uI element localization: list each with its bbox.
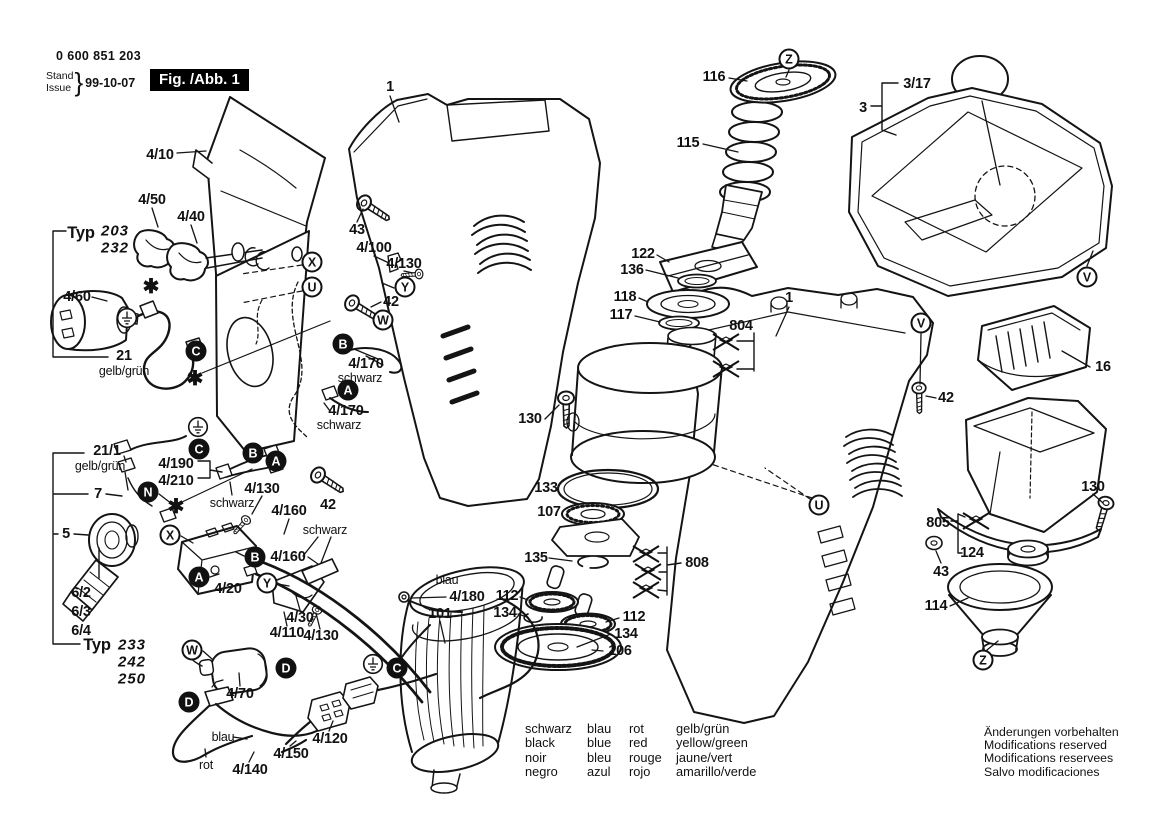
- issue-date: 99-10-07: [85, 76, 135, 90]
- callout-4-140: 4/140: [232, 763, 267, 778]
- legend-term: rouge: [629, 751, 676, 765]
- connector-w-outline: W: [373, 310, 394, 331]
- document-part-number: 0 600 851 203: [56, 49, 141, 63]
- obsolete-symbol: [631, 544, 661, 564]
- note-line: Modifications reservees: [984, 752, 1119, 765]
- connector-z-outline: Z: [779, 49, 800, 70]
- legend-term: black: [525, 736, 587, 750]
- footer-notes: Änderungen vorbehalten Modifications res…: [984, 726, 1119, 779]
- callout-42: 42: [938, 391, 954, 406]
- callout-130: 130: [1081, 480, 1105, 495]
- connector-c-filled: C: [186, 341, 207, 362]
- callout-6-3: 6/3: [71, 605, 91, 620]
- callout-7: 7: [94, 487, 102, 502]
- ground-symbol: [187, 416, 209, 438]
- callout-242: 242: [118, 655, 146, 670]
- callout-42: 42: [383, 295, 399, 310]
- callout-117: 117: [610, 308, 633, 323]
- callout-schwarz: schwarz: [210, 497, 254, 510]
- connector-y-outline: Y: [257, 573, 278, 594]
- legend-term: rot: [629, 722, 676, 736]
- callout-6-2: 6/2: [71, 586, 91, 601]
- issue-block: Stand Issue }99-10-07: [46, 70, 135, 98]
- callout-4-10: 4/10: [146, 148, 173, 163]
- connector-a-filled: A: [189, 567, 210, 588]
- callout-4-70: 4/70: [226, 687, 253, 702]
- stand-label: Stand: [46, 70, 73, 82]
- callout-805: 805: [926, 516, 950, 531]
- obsolete-symbol: [711, 332, 741, 352]
- obsolete-symbol: [711, 359, 741, 379]
- callout-21: 21: [116, 349, 132, 364]
- callout-106: 106: [608, 644, 632, 659]
- legend-term: azul: [587, 765, 629, 779]
- callout-16: 16: [1095, 360, 1111, 375]
- connector-x-outline: X: [160, 525, 181, 546]
- callout-4-210: 4/210: [158, 474, 193, 489]
- insert-16: [978, 306, 1090, 390]
- connector-a-filled: A: [266, 451, 287, 472]
- connector-v-outline: V: [1077, 267, 1098, 288]
- connector-v-outline: V: [911, 313, 932, 334]
- callout-typ: Typ: [67, 225, 95, 242]
- connector-u-outline: U: [809, 495, 830, 516]
- legend-term: blau: [587, 722, 629, 736]
- callout-134: 134: [614, 627, 638, 642]
- connector-b-filled: B: [245, 547, 266, 568]
- callout-4-130: 4/130: [303, 629, 338, 644]
- callout-124: 124: [960, 546, 984, 561]
- callout-107: 107: [537, 505, 561, 520]
- callout-5: 5: [62, 527, 70, 542]
- legend-term: negro: [525, 765, 587, 779]
- callout-122: 122: [631, 247, 655, 262]
- callout-schwarz: schwarz: [303, 524, 347, 537]
- color-legend: schwarzblaurotgelb/grünblackblueredyello…: [525, 722, 756, 779]
- callout-3: 3: [859, 101, 867, 116]
- hopper-cover: [849, 56, 1112, 296]
- legend-term: red: [629, 736, 676, 750]
- figure-label: Fig. /Abb. 1: [150, 69, 249, 91]
- callout-136: 136: [620, 263, 644, 278]
- callout-4-120: 4/120: [312, 732, 347, 747]
- callout-4-110: 4/110: [270, 626, 305, 641]
- callout-4-160: 4/160: [271, 504, 306, 519]
- callout-gelb-gr-n: gelb/grün: [75, 460, 125, 473]
- callout-133: 133: [534, 481, 558, 496]
- callout-203: 203: [101, 224, 129, 239]
- callout-112: 112: [623, 610, 646, 625]
- legend-term: rojo: [629, 765, 676, 779]
- legend-term: noir: [525, 751, 587, 765]
- asterisk-symbol: ✱: [143, 277, 160, 297]
- callout-blau: blau: [212, 731, 235, 744]
- callout-4-60: 4/60: [63, 290, 90, 305]
- callout-4-50: 4/50: [138, 193, 165, 208]
- callout-808: 808: [685, 556, 709, 571]
- callout-4-150: 4/150: [273, 747, 308, 762]
- callout-4-170: 4/170: [328, 404, 363, 419]
- connector-w-outline: W: [182, 640, 203, 661]
- legend-term: jaune/vert: [676, 751, 756, 765]
- callout-42: 42: [320, 498, 336, 513]
- callout-4-40: 4/40: [177, 210, 204, 225]
- callout-4-130: 4/130: [386, 257, 421, 272]
- legend-term: bleu: [587, 751, 629, 765]
- callout-4-20: 4/20: [214, 582, 241, 597]
- obsolete-symbol: [633, 562, 663, 582]
- callout-130: 130: [518, 412, 542, 427]
- diagram-canvas: 0 600 851 203 Stand Issue }99-10-07 Fig.…: [0, 0, 1168, 826]
- legend-term: yellow/green: [676, 736, 756, 750]
- legend-term: gelb/grün: [676, 722, 756, 736]
- callout-115: 115: [677, 136, 700, 151]
- callout-gelb-gr-n: gelb/grün: [99, 365, 149, 378]
- callout-116: 116: [703, 70, 726, 85]
- callout-232: 232: [101, 241, 129, 256]
- connector-a-filled: A: [338, 380, 359, 401]
- callout-233: 233: [118, 638, 146, 653]
- brace-glyph: }: [74, 70, 83, 94]
- connector-z-outline: Z: [973, 650, 994, 671]
- connector-c-filled: C: [189, 439, 210, 460]
- legend-term: amarillo/verde: [676, 765, 756, 779]
- callout-4-160: 4/160: [270, 550, 305, 565]
- connector-u-outline: U: [302, 277, 323, 298]
- connector-d-filled: D: [179, 692, 200, 713]
- callout-1: 1: [386, 80, 394, 95]
- connector-n-filled: N: [138, 482, 159, 503]
- callout-134: 134: [493, 606, 517, 621]
- ground-symbol: [362, 653, 384, 675]
- callout-1: 1: [785, 291, 793, 306]
- callout-4-100: 4/100: [356, 241, 391, 256]
- callout-blau: blau: [436, 574, 459, 587]
- asterisk-symbol: ✱: [168, 497, 185, 517]
- callout-118: 118: [614, 290, 637, 305]
- connector-b-filled: B: [243, 443, 264, 464]
- note-line: Salvo modificaciones: [984, 766, 1119, 779]
- callout-3-17: 3/17: [903, 77, 930, 92]
- callout-rot: rot: [199, 759, 213, 772]
- callout-135: 135: [524, 551, 548, 566]
- ground-symbol: [116, 307, 138, 329]
- obsolete-symbol: [631, 580, 661, 600]
- callout-43: 43: [933, 565, 949, 580]
- issue-label: Issue: [46, 82, 71, 94]
- connector-d-filled: D: [276, 658, 297, 679]
- callout-typ: Typ: [83, 637, 111, 654]
- connector-y-outline: Y: [395, 277, 416, 298]
- connector-b-filled: B: [333, 334, 354, 355]
- callout-250: 250: [118, 672, 146, 687]
- legend-term: schwarz: [525, 722, 587, 736]
- asterisk-symbol: ✱: [187, 369, 204, 389]
- exploded-parts-drawing: [0, 0, 1168, 826]
- legend-term: blue: [587, 736, 629, 750]
- callout-21-1: 21/1: [93, 444, 120, 459]
- spring-assembly: [647, 55, 838, 330]
- callout-114: 114: [925, 599, 948, 614]
- callout-4-130: 4/130: [244, 482, 279, 497]
- callout-112: 112: [496, 589, 519, 604]
- obsolete-symbol: [961, 511, 991, 531]
- callout-4-180: 4/180: [449, 590, 484, 605]
- callout-43: 43: [349, 223, 365, 238]
- funnel-114: [948, 564, 1052, 656]
- connector-x-outline: X: [302, 252, 323, 273]
- callout-4-170: 4/170: [348, 357, 383, 372]
- callout-4-190: 4/190: [158, 457, 193, 472]
- callout-101: 101: [428, 607, 452, 622]
- callout-4-30: 4/30: [286, 611, 313, 626]
- callout-schwarz: schwarz: [317, 419, 361, 432]
- connector-c-filled: C: [387, 658, 408, 679]
